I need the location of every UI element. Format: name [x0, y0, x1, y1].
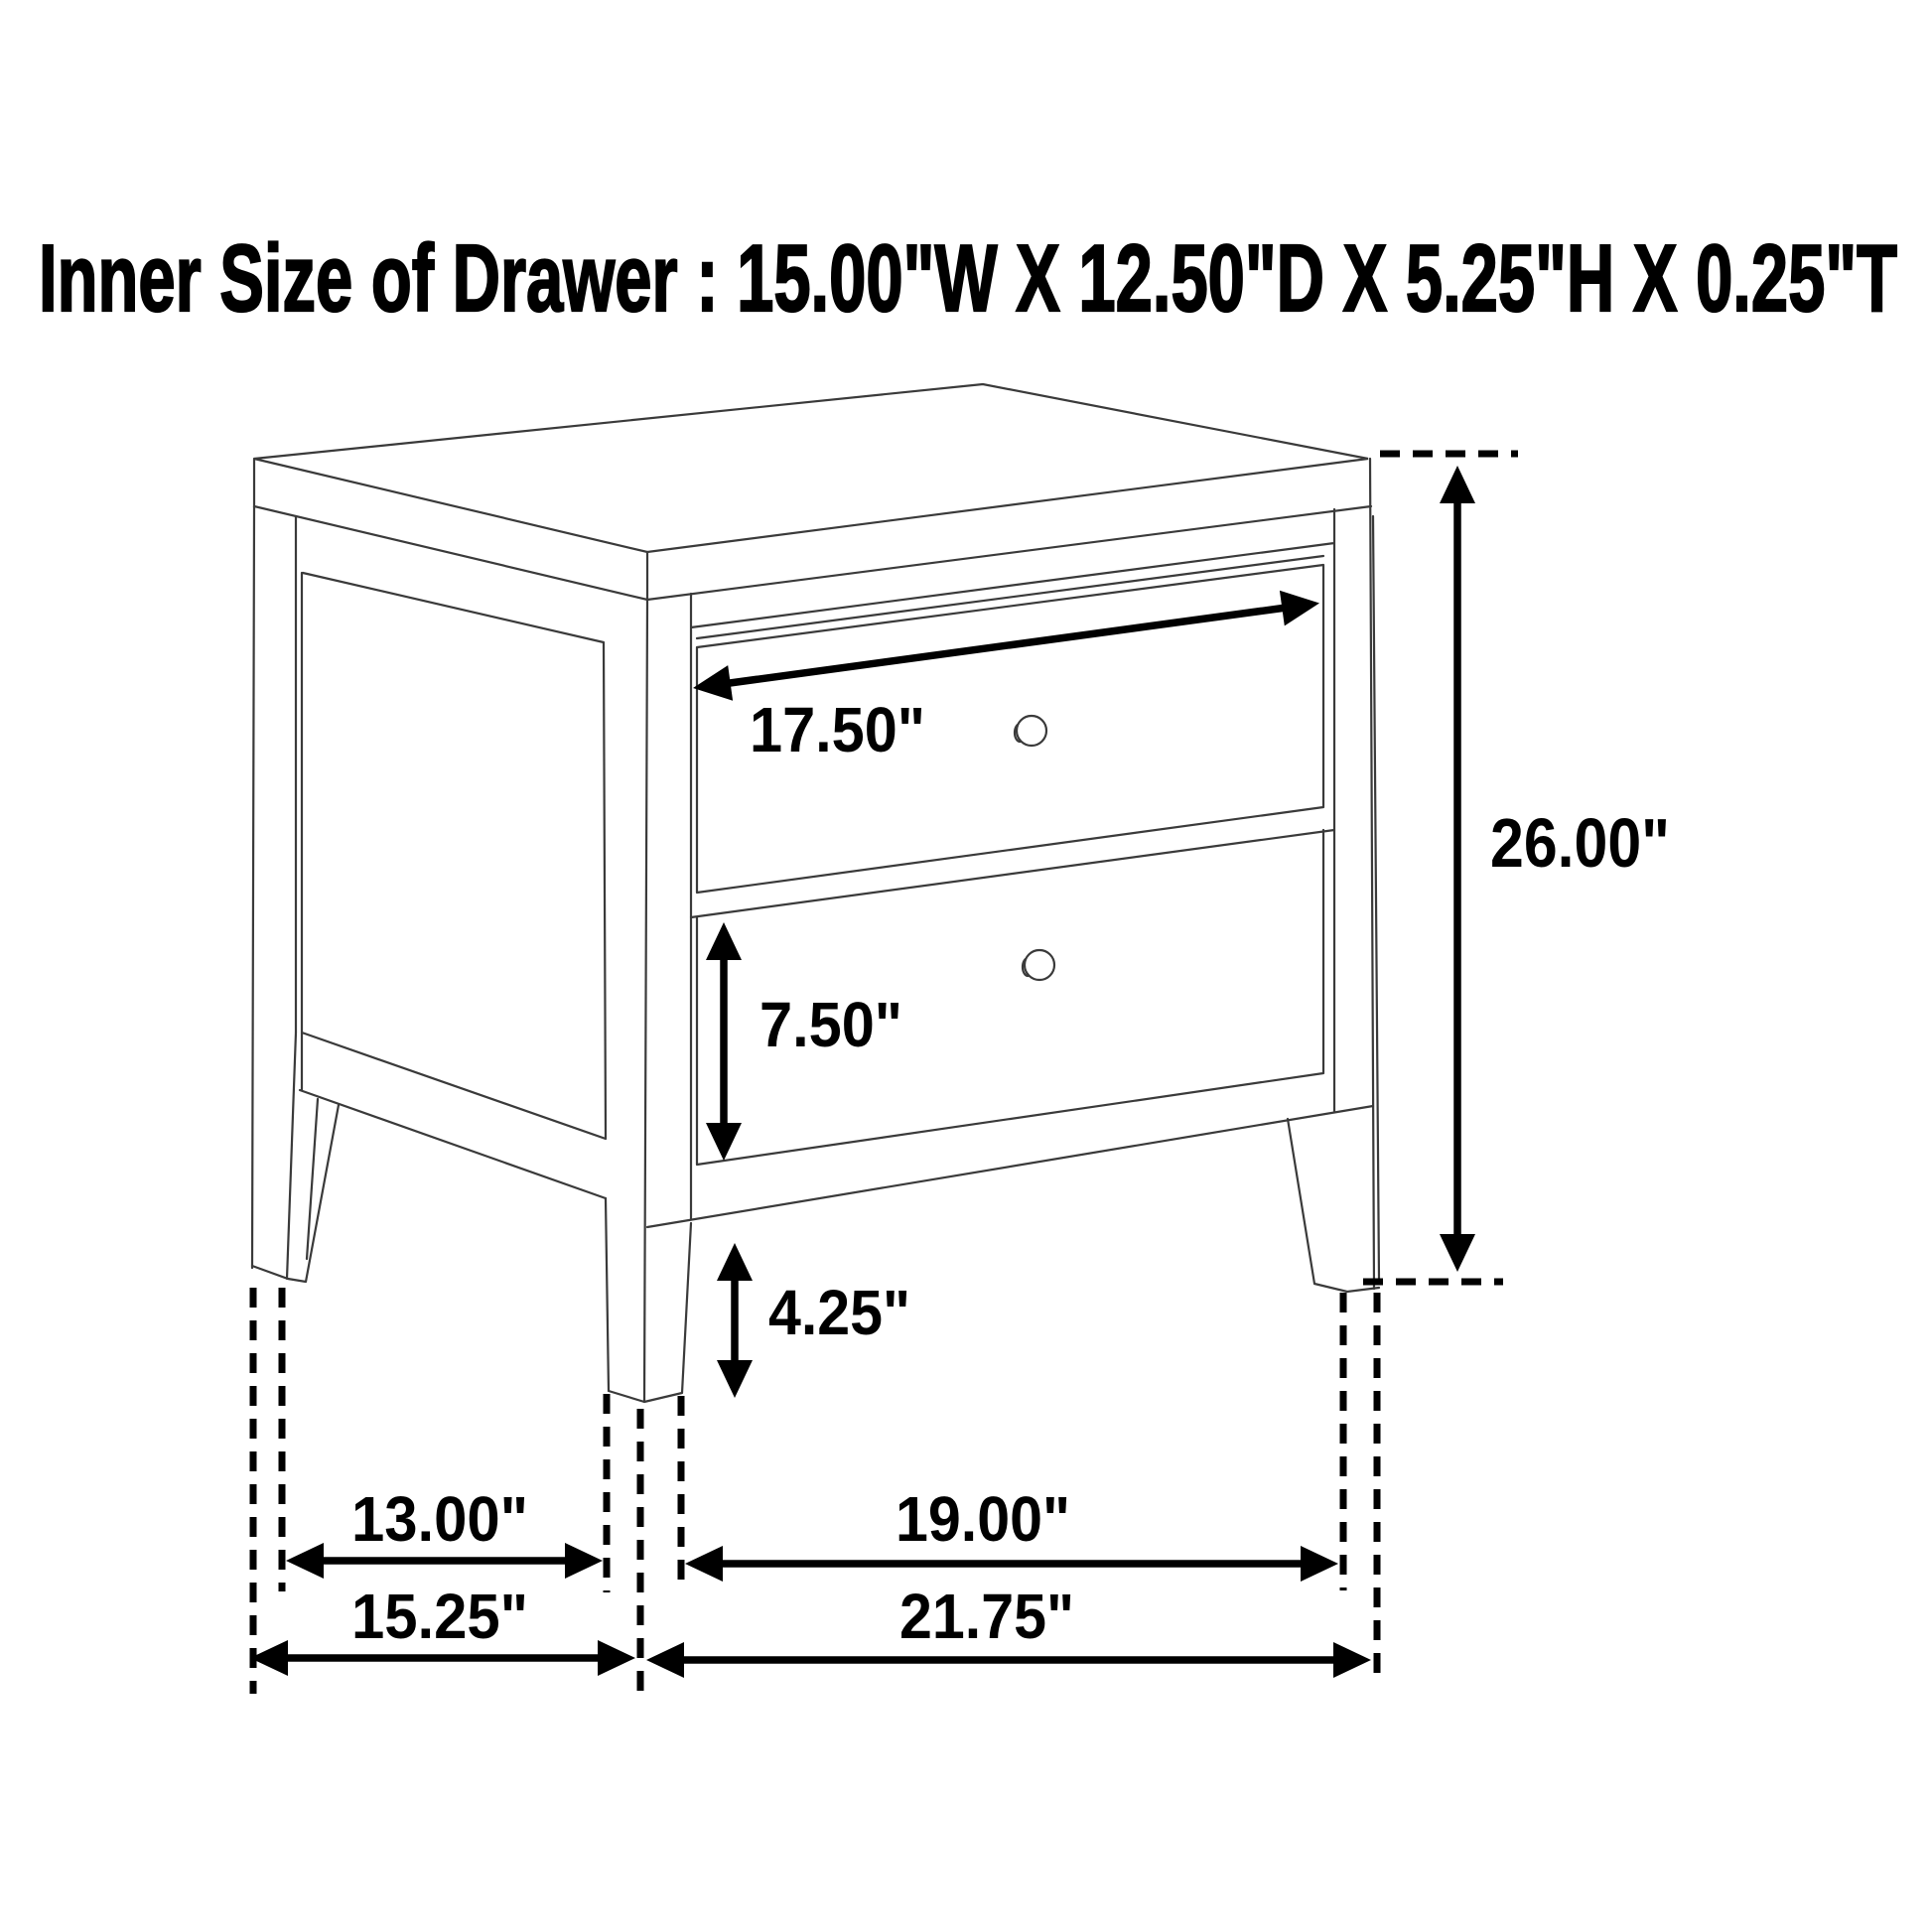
svg-text:13.00": 13.00": [351, 1483, 528, 1555]
svg-text:7.50": 7.50": [759, 989, 902, 1060]
svg-text:26.00": 26.00": [1490, 804, 1670, 882]
svg-text:21.75": 21.75": [899, 1581, 1074, 1652]
svg-text:17.50": 17.50": [750, 694, 925, 765]
svg-text:4.25": 4.25": [768, 1277, 910, 1348]
svg-text:15.25": 15.25": [351, 1581, 528, 1652]
svg-text:19.00": 19.00": [896, 1483, 1070, 1555]
svg-text:Inner Size of Drawer : 15.00"W: Inner Size of Drawer : 15.00"W X 12.50"D…: [39, 225, 1897, 332]
